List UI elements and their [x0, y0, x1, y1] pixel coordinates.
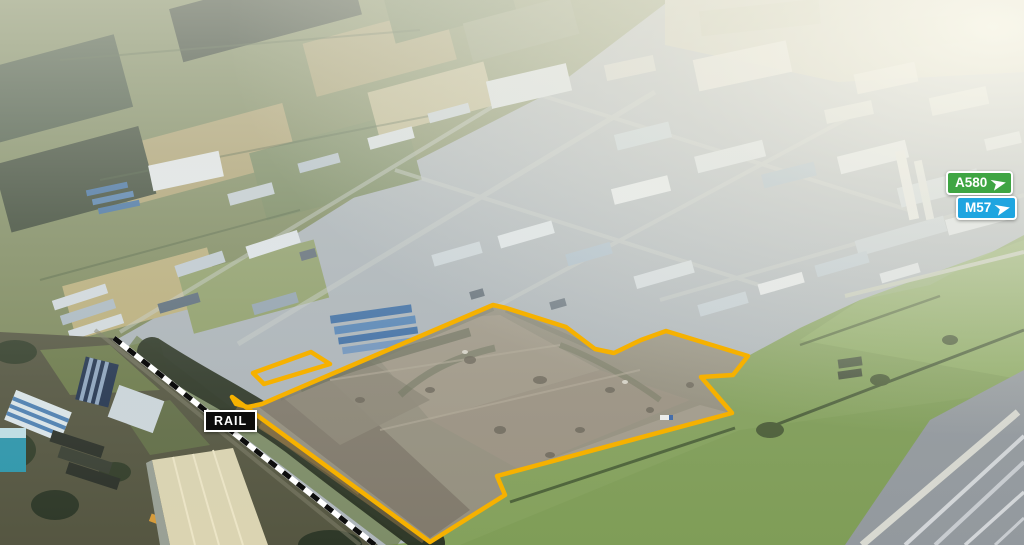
rail-label-text: RAIL	[214, 414, 247, 428]
road-sign-a580-label: A580	[955, 173, 987, 193]
sun-glare-overlay	[0, 0, 1024, 545]
navigation-arrow-icon	[990, 176, 1007, 191]
rail-label: RAIL	[204, 410, 257, 432]
road-sign-m57-label: M57	[965, 198, 991, 218]
aerial-photo-canvas	[0, 0, 1024, 545]
aerial-site-photo: RAIL A580 M57	[0, 0, 1024, 545]
road-sign-a580: A580	[946, 171, 1013, 195]
navigation-arrow-icon	[994, 201, 1011, 216]
road-sign-m57: M57	[956, 196, 1017, 220]
